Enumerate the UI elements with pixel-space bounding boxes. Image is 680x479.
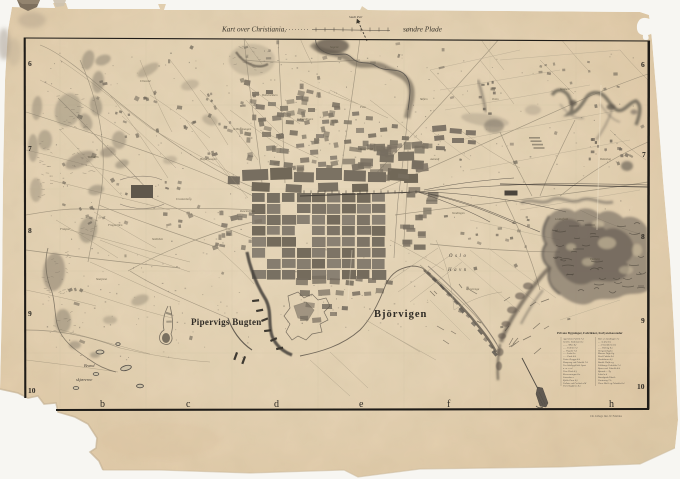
svg-text:10: 10 xyxy=(28,386,36,395)
svg-text:Blindern: Blindern xyxy=(88,155,99,159)
svg-text:7: 7 xyxy=(28,144,32,153)
svg-text:8: 8 xyxy=(28,226,32,235)
svg-text:Ekeberg: Ekeberg xyxy=(589,257,600,261)
svg-text:Soerenga: Soerenga xyxy=(468,287,480,291)
svg-text:Havn: Havn xyxy=(447,268,469,273)
svg-text:Ullevold: Ullevold xyxy=(140,79,151,83)
svg-text:Oslo: Oslo xyxy=(449,254,468,259)
svg-text:Sagene: Sagene xyxy=(330,45,339,49)
svg-text:Soften: Soften xyxy=(420,97,428,101)
svg-text:b: b xyxy=(100,399,105,410)
svg-text:Hegdehaugen: Hegdehaugen xyxy=(199,157,217,161)
svg-text:Fhne. Mell. og Febnkke 8.d: Fhne. Mell. og Febnkke 8.d xyxy=(597,382,625,385)
svg-text:Pipervigs Bugten: Pipervigs Bugten xyxy=(191,317,262,327)
svg-text:Fjerdingen: Fjerdingen xyxy=(299,117,314,121)
svg-text:Grefsen: Grefsen xyxy=(560,87,570,91)
svg-text:6: 6 xyxy=(641,60,645,69)
svg-text:Groenland: Groenland xyxy=(360,147,373,151)
svg-text:Portd bygktnss 8.e: Portd bygktnss 8.e xyxy=(562,385,581,388)
svg-text:h: h xyxy=(609,399,614,410)
svg-text:søndre Plade: søndre Plade xyxy=(403,25,443,34)
svg-text:Ruseloekken: Ruseloekken xyxy=(239,209,255,213)
svg-text:skjærerne: skjærerne xyxy=(76,377,93,382)
svg-text:Foss: Foss xyxy=(359,105,367,109)
svg-text:Frognerlien: Frognerlien xyxy=(107,223,123,227)
svg-text:Stadt Peil: Stadt Peil xyxy=(349,15,362,19)
svg-text:Björvigen: Björvigen xyxy=(374,309,427,320)
svg-text:d: d xyxy=(274,399,279,410)
svg-text:10: 10 xyxy=(637,382,645,391)
svg-text:Bolteloekken: Bolteloekken xyxy=(262,93,278,97)
svg-text:6: 6 xyxy=(28,59,32,68)
svg-text:c: c xyxy=(186,399,191,410)
svg-text:Skillebek: Skillebek xyxy=(152,237,163,241)
svg-text:e: e xyxy=(359,399,364,410)
svg-text:Uranienborg: Uranienborg xyxy=(176,197,192,201)
svg-text:St.Hanshaugen: St.Hanshaugen xyxy=(233,127,252,131)
svg-text:9: 9 xyxy=(28,309,32,318)
svg-text:9: 9 xyxy=(641,316,645,325)
svg-text:Brand: Brand xyxy=(84,363,95,368)
svg-text:Bekkelag: Bekkelag xyxy=(600,157,611,161)
svg-text:Chr. Lithogr. Inst. W. Fabriti: Chr. Lithogr. Inst. W. Fabritius xyxy=(590,415,622,418)
svg-text:Skarpsno: Skarpsno xyxy=(96,277,108,281)
svg-text:Frskjaer: Frskjaer xyxy=(59,227,71,231)
svg-text:Private Bygninger, Fabrikker,: Private Bygninger, Fabrikker, Forlystels… xyxy=(557,331,623,335)
svg-text:Toien: Toien xyxy=(492,97,499,101)
svg-text:8: 8 xyxy=(641,232,645,241)
svg-text:7: 7 xyxy=(642,150,646,159)
svg-text:Kart over Christiania,: Kart over Christiania, xyxy=(221,26,286,34)
svg-text:Aamodt: Aamodt xyxy=(429,157,439,161)
svg-text:Vandingen: Vandingen xyxy=(452,211,465,215)
svg-text:Loddefjeld: Loddefjeld xyxy=(554,217,568,221)
